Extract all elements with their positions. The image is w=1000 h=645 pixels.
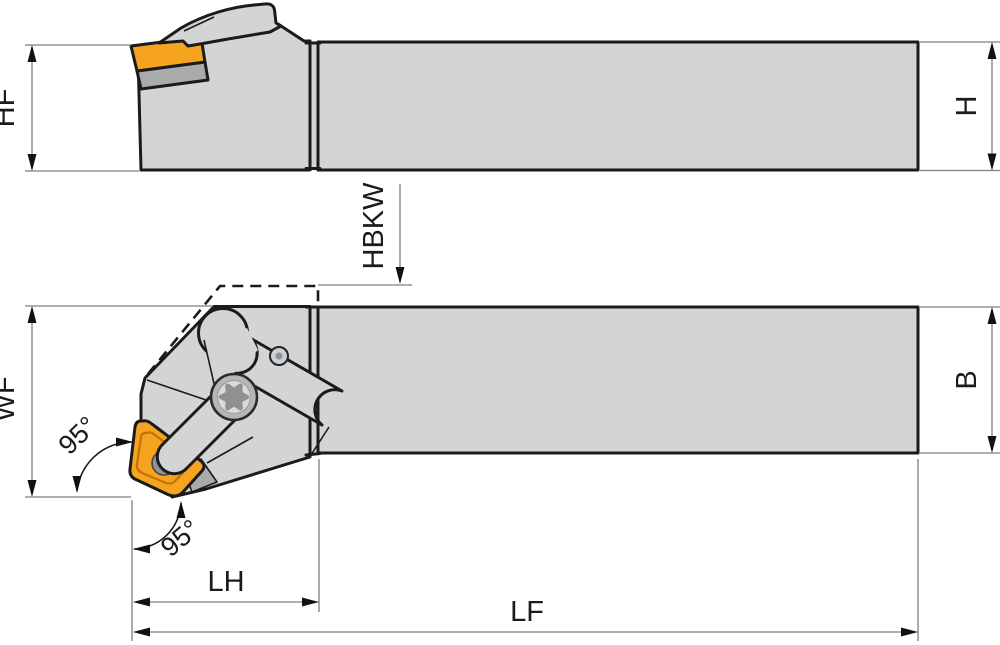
tool-holder-technical-drawing: HF H HBKW xyxy=(0,0,1000,645)
small-screw-icon xyxy=(270,347,288,365)
h-arrow-down xyxy=(988,154,997,171)
dim-lf: LF xyxy=(133,459,918,641)
drawing-canvas: HF H HBKW xyxy=(0,0,1000,645)
wf-arrow-down xyxy=(28,480,37,497)
angle-side-arrow-right xyxy=(116,438,133,447)
lh-arrow-right xyxy=(302,598,319,607)
wf-arrow-up xyxy=(28,306,37,323)
h-arrow-up xyxy=(988,42,997,59)
wf-label: WF xyxy=(0,376,21,421)
angle-bottom-label: 95° xyxy=(155,513,206,562)
dim-b: B xyxy=(920,307,1000,453)
lf-label: LF xyxy=(510,596,544,628)
dim-hf: HF xyxy=(0,45,139,171)
plan-view-drawing xyxy=(130,286,918,497)
torx-screw-icon xyxy=(211,374,257,420)
dim-angle-side: 95° xyxy=(53,411,133,493)
angle-side-label: 95° xyxy=(53,411,103,461)
b-arrow-down xyxy=(988,436,997,453)
lh-label: LH xyxy=(207,566,244,598)
angle-bottom-arrow-left xyxy=(133,545,150,554)
side-view-drawing xyxy=(131,4,918,170)
lf-arrow-left xyxy=(133,628,150,637)
side-shank xyxy=(318,42,918,170)
angle-side-arc xyxy=(77,442,132,491)
hf-arrow-down xyxy=(28,154,37,171)
hf-label: HF xyxy=(0,89,21,128)
hf-arrow-up xyxy=(28,45,37,62)
lh-arrow-left xyxy=(133,598,150,607)
plan-shank xyxy=(318,307,918,453)
b-arrow-up xyxy=(988,307,997,324)
hbkw-label: HBKW xyxy=(358,182,390,270)
h-label: H xyxy=(951,96,983,117)
dim-angle-bottom: 95° xyxy=(133,501,206,563)
dim-h: H xyxy=(920,42,1000,171)
angle-side-arrow-down xyxy=(73,476,82,493)
hbkw-arrow-down xyxy=(396,267,405,284)
lf-arrow-right xyxy=(901,628,918,637)
b-label: B xyxy=(951,370,983,389)
